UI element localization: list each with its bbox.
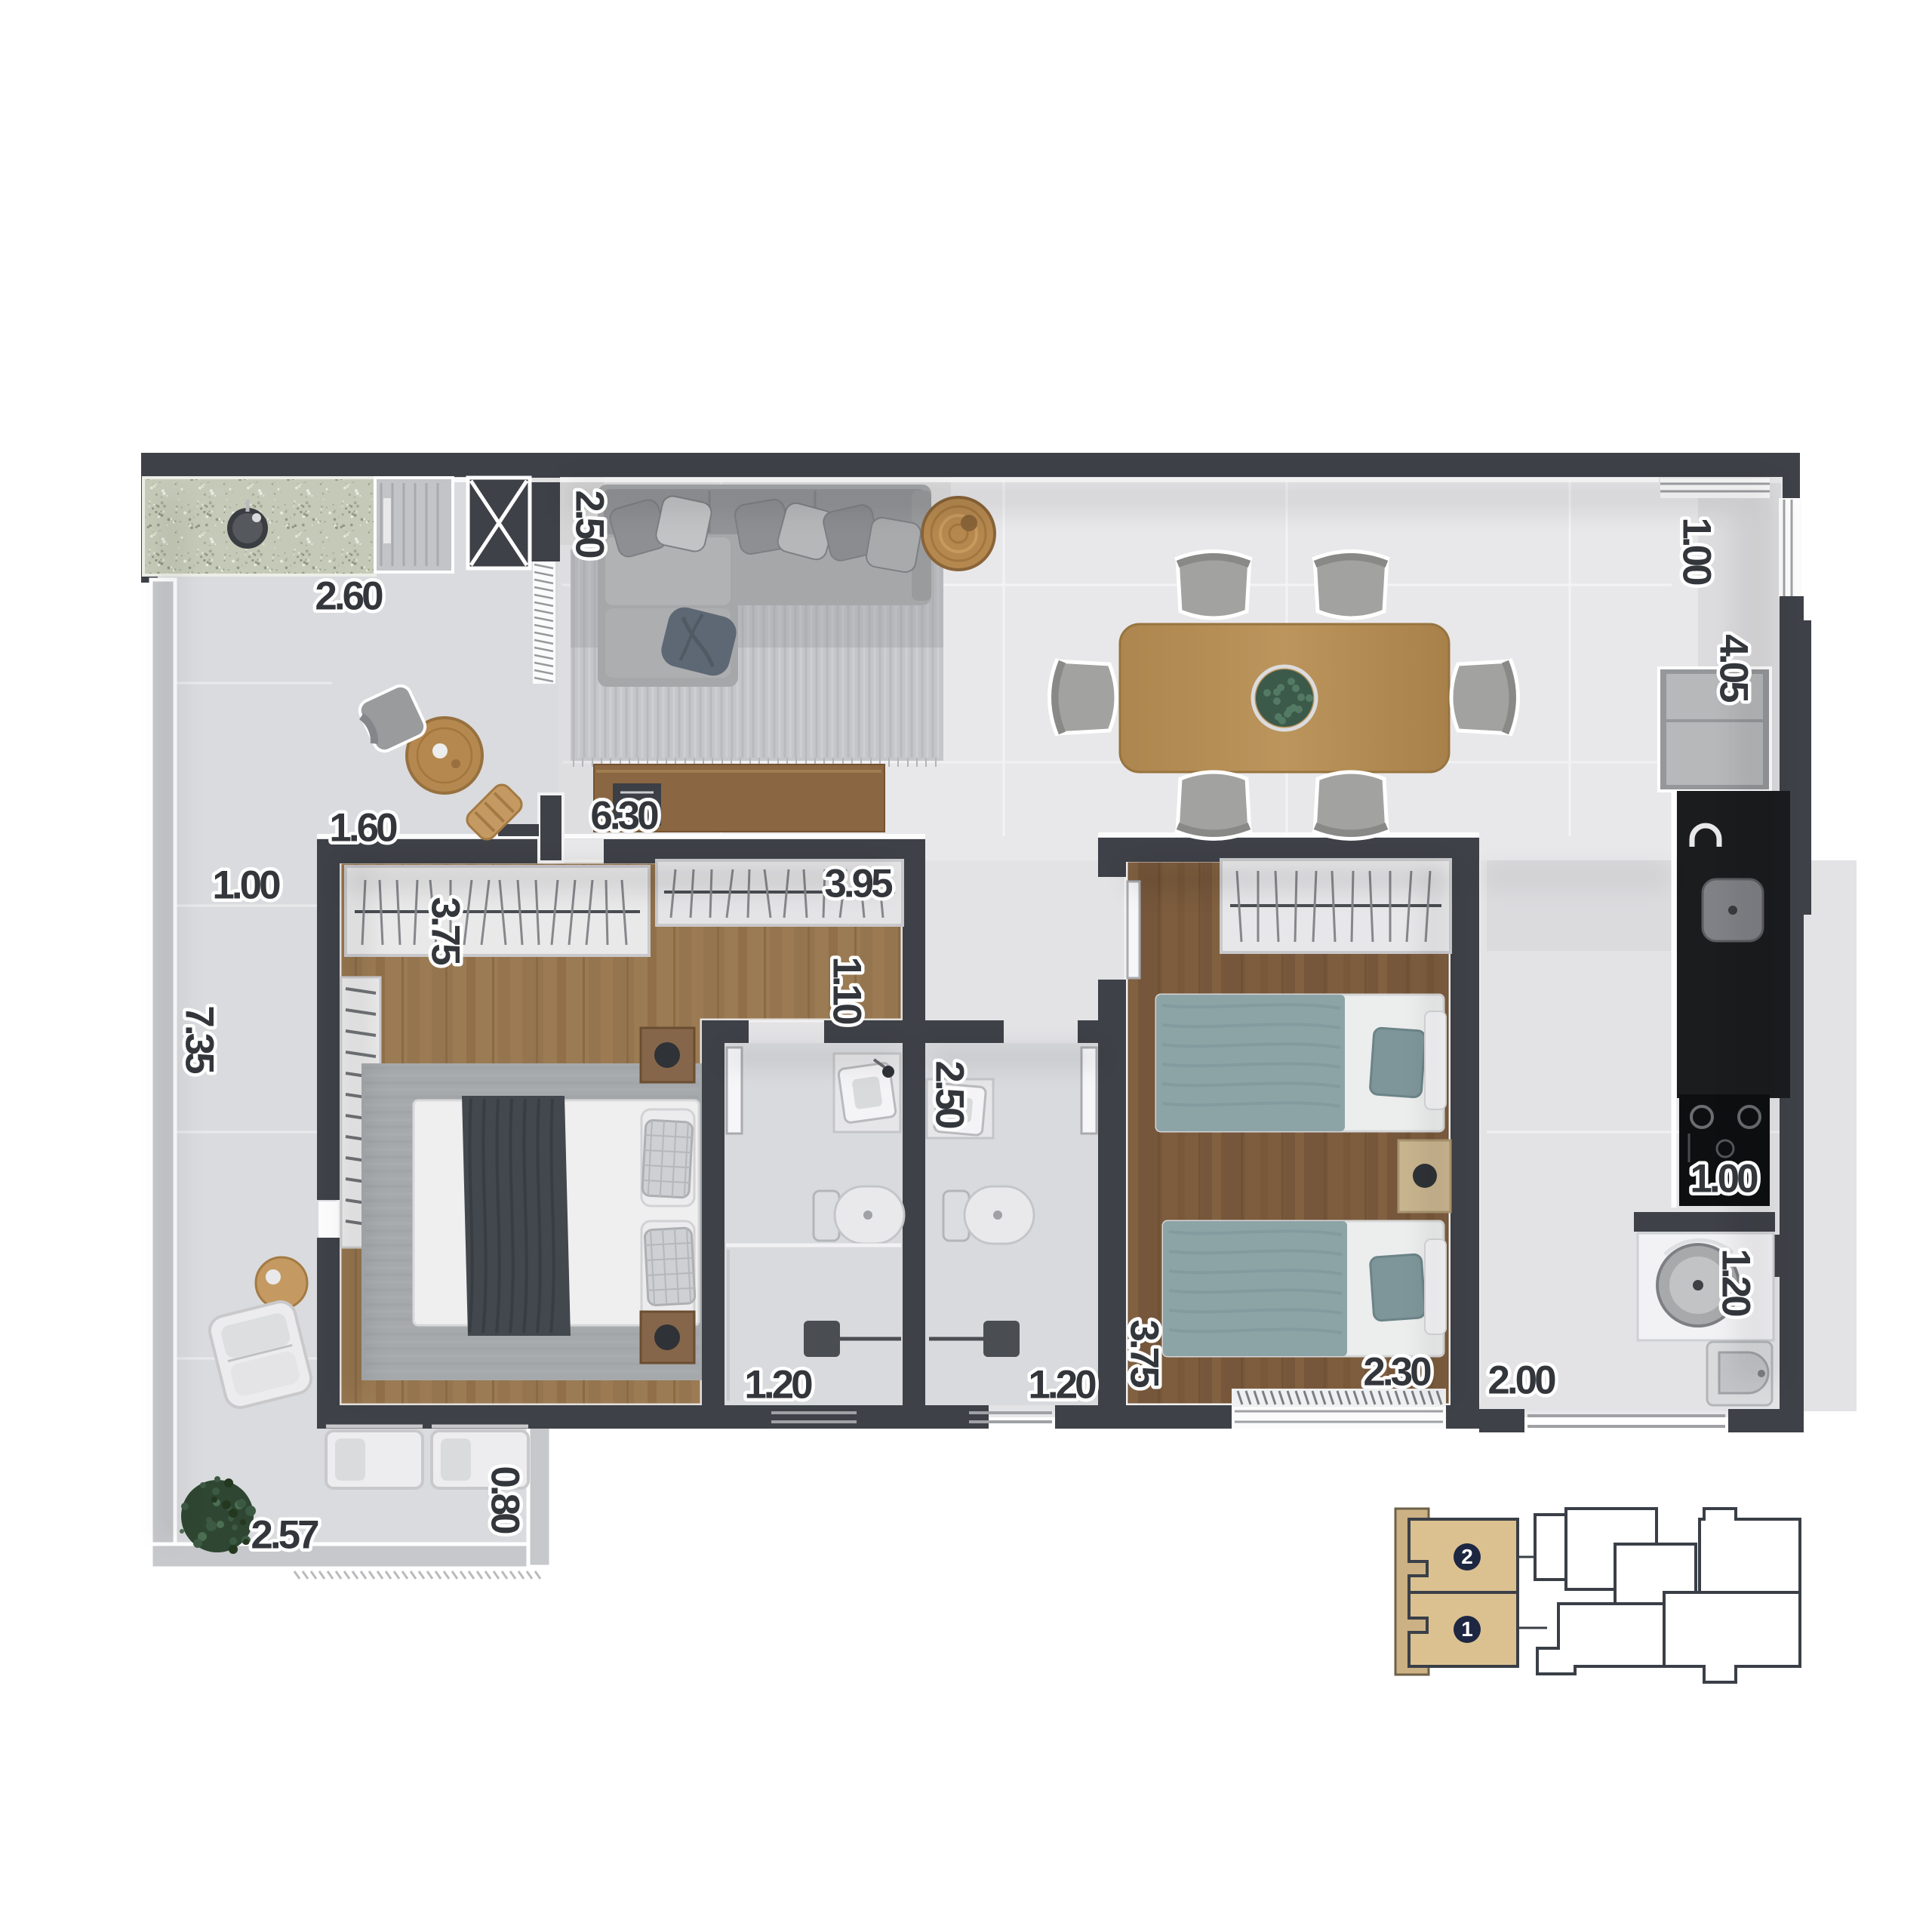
svg-text:1.00: 1.00 <box>1675 517 1719 585</box>
svg-text:2.30: 2.30 <box>1363 1350 1431 1395</box>
svg-text:3.75: 3.75 <box>423 897 468 964</box>
svg-text:2: 2 <box>1461 1545 1473 1568</box>
svg-text:3.75: 3.75 <box>1122 1319 1167 1387</box>
svg-text:6.30: 6.30 <box>590 794 658 838</box>
svg-text:1: 1 <box>1461 1617 1473 1641</box>
svg-text:1.20: 1.20 <box>1028 1363 1096 1407</box>
svg-text:2.50: 2.50 <box>928 1060 972 1128</box>
svg-text:1.20: 1.20 <box>1714 1248 1758 1316</box>
svg-text:4.05: 4.05 <box>1712 634 1756 702</box>
svg-text:0.80: 0.80 <box>483 1466 528 1534</box>
svg-text:1.00: 1.00 <box>212 863 280 908</box>
svg-text:1.60: 1.60 <box>329 806 397 851</box>
svg-text:1.10: 1.10 <box>825 956 869 1024</box>
svg-text:2.57: 2.57 <box>251 1513 318 1558</box>
svg-text:1.00: 1.00 <box>1690 1157 1758 1201</box>
svg-text:3.95: 3.95 <box>824 862 892 906</box>
svg-text:7.35: 7.35 <box>177 1005 222 1073</box>
svg-text:2.60: 2.60 <box>315 574 383 619</box>
svg-text:1.20: 1.20 <box>744 1363 812 1407</box>
svg-text:2.50: 2.50 <box>568 490 612 558</box>
svg-text:2.00: 2.00 <box>1487 1358 1555 1403</box>
